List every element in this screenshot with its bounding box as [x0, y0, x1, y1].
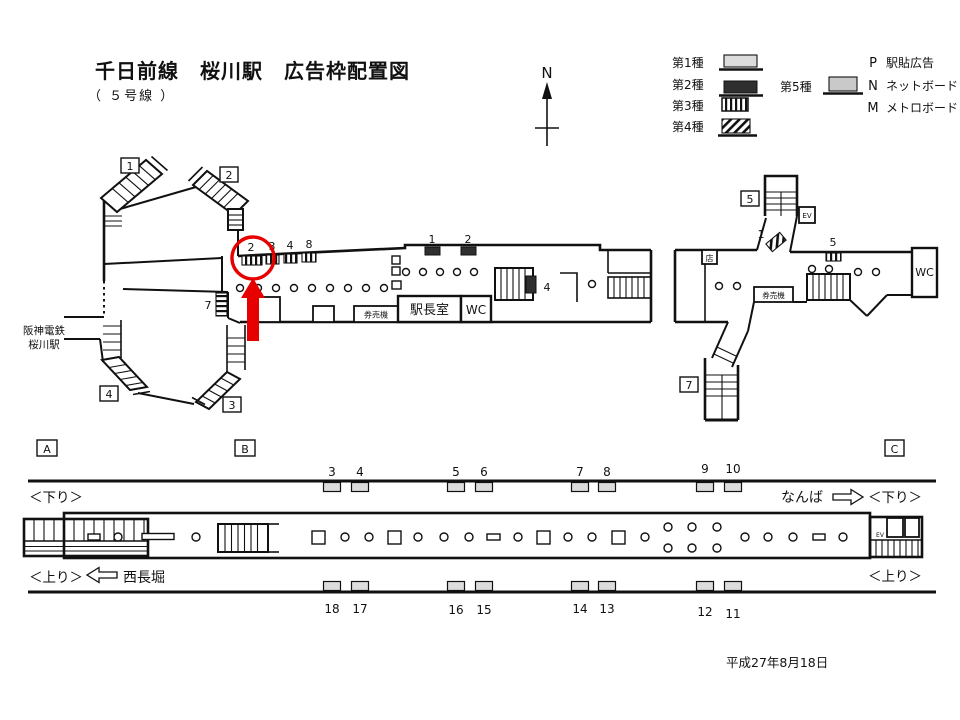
pillar — [341, 533, 349, 541]
pillar — [855, 269, 862, 276]
legend-type4-swatch — [722, 119, 750, 133]
platform-right-stairs: EV — [870, 517, 922, 557]
namba-destination: なんば — [781, 490, 823, 506]
platform-ad-label: 10 — [725, 462, 740, 476]
platform-ad-frame — [324, 483, 341, 492]
left-arrow-icon — [87, 568, 117, 583]
board-4 — [526, 276, 536, 293]
pillar — [741, 533, 749, 541]
platform-ad-label: 11 — [725, 607, 740, 621]
platform-ad-label: 13 — [599, 602, 614, 616]
ad-frame-7-label: 7 — [205, 299, 212, 312]
pillar-box — [537, 531, 550, 544]
legend-p-label: 駅貼広告 — [886, 55, 934, 70]
legend-n-label: ネットボード — [886, 79, 958, 93]
legend-type1-label: 第1種 — [672, 56, 704, 70]
ad-frame-8-label: 8 — [306, 238, 313, 251]
pillar — [514, 533, 522, 541]
pillar — [809, 266, 816, 273]
legend-n-key: N — [868, 79, 878, 94]
stair-3: 3 — [138, 325, 245, 412]
platform-ad-frame — [697, 582, 714, 591]
utility-room — [313, 306, 334, 322]
ticket-machine-label: 券売機 — [762, 290, 785, 300]
legend-p-key: P — [869, 56, 877, 71]
up-direction-left: ＜上り＞ — [29, 570, 83, 586]
stair-band — [102, 357, 147, 390]
pillar — [873, 269, 880, 276]
ad-frame-2-label: 2 — [248, 241, 255, 254]
left-concourse: 1 2 — [23, 157, 651, 413]
pillar — [839, 533, 847, 541]
ad-frame-4 — [284, 254, 297, 263]
shop-label: 店 — [706, 253, 714, 263]
down-direction-right: ＜下り＞ — [868, 490, 922, 506]
legend-type2-swatch — [724, 81, 757, 93]
pillar — [465, 533, 473, 541]
pillar-box — [312, 531, 325, 544]
right-arrow-icon — [833, 490, 863, 505]
wall — [790, 216, 797, 252]
legend-type3-label: 第3種 — [672, 99, 704, 113]
stair-7: 7 — [680, 322, 748, 420]
legend-type1-swatch — [724, 55, 757, 67]
corridor-top-wall — [238, 245, 651, 256]
legend: 第1種 第2種 第3種 第4種 第5種 P 駅貼広告 N ネットボード M メト… — [672, 55, 958, 136]
stair-rail — [732, 331, 748, 367]
pillar-box — [142, 534, 174, 540]
pillar — [716, 283, 723, 290]
pillar — [688, 523, 696, 531]
pillar-box — [392, 267, 400, 275]
pillar — [345, 285, 352, 292]
platform-ad-label: 3 — [328, 465, 336, 479]
pillar — [365, 533, 373, 541]
pillar — [764, 533, 772, 541]
platform-ad-frame — [572, 582, 589, 591]
date-label: 平成27年8月18日 — [726, 655, 828, 670]
pillar — [641, 533, 649, 541]
pillar — [454, 269, 461, 276]
platform-ad-label: 5 — [452, 465, 460, 479]
board-2 — [461, 247, 476, 255]
platform-ev-label: EV — [876, 532, 885, 539]
platform-ad-frame — [725, 582, 742, 591]
pillar — [440, 533, 448, 541]
wc-label: WC — [466, 303, 486, 317]
wall — [100, 339, 103, 362]
platform-ad-label: 4 — [356, 465, 364, 479]
platform-ad-label: 9 — [701, 462, 709, 476]
pillar — [414, 533, 422, 541]
stair-1: 1 — [101, 157, 168, 227]
platform-ad-label: 8 — [603, 465, 611, 479]
north-label: N — [541, 64, 552, 82]
title-block: 千日前線 桜川駅 広告枠配置図 （ ５号線 ） — [88, 59, 410, 104]
pillar — [420, 269, 427, 276]
station-ad-layout-page: 千日前線 桜川駅 広告枠配置図 （ ５号線 ） N 第1種 第2種 第3種 第4… — [0, 0, 960, 720]
pillar-box — [392, 281, 401, 289]
ad-frame-r5-label: 5 — [830, 236, 837, 249]
pillar — [327, 285, 334, 292]
platform-ad-label: 17 — [352, 602, 367, 616]
pillar — [688, 544, 696, 552]
wall — [748, 302, 754, 331]
exit-2-label: 2 — [226, 169, 233, 182]
platform-ad-frame — [476, 483, 493, 492]
ad-frame-r1-label: 1 — [758, 228, 765, 241]
pillar — [589, 281, 596, 288]
platform-ad-label: 14 — [572, 602, 587, 616]
pillar — [471, 269, 478, 276]
pillar — [564, 533, 572, 541]
legend-type5-swatch — [829, 77, 857, 91]
pillar-box — [88, 534, 100, 540]
wc-label: WC — [915, 266, 934, 279]
pillar — [664, 544, 672, 552]
pillar — [734, 283, 741, 290]
right-central-stairs — [807, 266, 880, 301]
platform-ad-frame — [476, 582, 493, 591]
stair-2: 2 — [189, 167, 249, 230]
compass-arrowhead-icon — [542, 82, 552, 99]
platform-left-stairs — [24, 519, 148, 556]
platform-ad-frame — [599, 483, 616, 492]
pillar — [403, 269, 410, 276]
station-master-label: 駅長室 — [410, 302, 449, 318]
legend-type2-label: 第2種 — [672, 78, 704, 92]
pillar — [363, 285, 370, 292]
legend-m-label: メトロボード — [886, 101, 958, 115]
page-subtitle: （ ５号線 ） — [88, 88, 175, 104]
wall — [867, 295, 887, 316]
ad-frame-7 — [216, 293, 227, 316]
page-title: 千日前線 桜川駅 広告枠配置図 — [95, 59, 410, 83]
stair-4: 4 — [100, 320, 150, 401]
north-compass: N — [535, 64, 559, 146]
platform-ad-frame — [448, 483, 465, 492]
pillar-box — [487, 534, 500, 540]
section-a-label: A — [43, 443, 51, 456]
right-concourse: 店 5 EV 1 5 券売機 — [675, 176, 937, 420]
platform-ad-frame — [448, 582, 465, 591]
machine-room — [905, 518, 919, 537]
platform-ad-frame — [697, 483, 714, 492]
platform-ad-label: 16 — [448, 603, 463, 617]
ad-frame-r5 — [826, 253, 841, 261]
pillar-box — [392, 256, 400, 264]
ad-frame-8 — [302, 253, 316, 262]
board-1 — [425, 247, 440, 255]
ad-frame-r1-box — [766, 232, 786, 251]
ad-frame-r1 — [766, 232, 786, 251]
pillar — [192, 533, 200, 541]
hanshin-station-label-line2: 桜川駅 — [28, 338, 60, 351]
platform-diagram: A B C 3 4 5 6 7 8 9 10 ＜下り＞ なんば ＜下り＞ ＜上り… — [24, 440, 936, 621]
board-4-label: 4 — [544, 281, 551, 294]
pillar — [664, 523, 672, 531]
wall — [228, 318, 240, 323]
wall — [850, 300, 867, 316]
platform-ad-frame — [324, 582, 341, 591]
upper-hall-bottom-wall — [104, 258, 222, 264]
platform-ad-label: 6 — [480, 465, 488, 479]
pillar — [273, 285, 280, 292]
legend-type5-label: 第5種 — [780, 80, 812, 94]
platform-ad-frame — [599, 582, 616, 591]
down-direction-left: ＜下り＞ — [29, 490, 83, 506]
pillar-box — [612, 531, 625, 544]
stair-tread — [717, 347, 736, 356]
platform-ad-frame — [572, 483, 589, 492]
stair-tread — [714, 354, 733, 363]
pillar-box — [813, 534, 825, 540]
legend-type3-swatch — [722, 98, 748, 111]
hanshin-station-label-line1: 阪神電鉄 — [23, 324, 65, 337]
platform-ad-label: 12 — [697, 605, 712, 619]
pillar — [291, 285, 298, 292]
exit-1-label: 1 — [127, 160, 134, 173]
exit-5-label: 5 — [747, 193, 754, 206]
legend-m-key: M — [867, 101, 878, 116]
section-c-label: C — [891, 443, 899, 456]
wall — [560, 273, 577, 302]
platform-center-stairs — [218, 524, 279, 552]
pillar — [713, 544, 721, 552]
up-direction-right: ＜上り＞ — [868, 569, 922, 585]
lower-hall-top-wall — [123, 289, 228, 292]
exit-4-label: 4 — [106, 388, 113, 401]
platform-ad-frame — [352, 582, 369, 591]
ticket-machine-label: 券売機 — [364, 310, 388, 320]
central-stairs: 4 — [495, 268, 551, 300]
pillar — [826, 266, 833, 273]
section-b-label: B — [241, 443, 249, 456]
lower-hall-bottom-wall — [138, 393, 194, 404]
pillar — [309, 285, 316, 292]
pillar — [114, 533, 122, 541]
pillar — [789, 533, 797, 541]
pillar — [381, 285, 388, 292]
platform-ad-label: 15 — [476, 603, 491, 617]
exit-3-label: 3 — [229, 399, 236, 412]
ad-frame-4-label: 4 — [287, 239, 294, 252]
stair-rail — [712, 322, 728, 358]
platform-pillars — [88, 523, 847, 552]
utility-room — [256, 297, 280, 322]
legend-type4-label: 第4種 — [672, 120, 704, 134]
pillar — [237, 285, 244, 292]
platform-ad-frame — [725, 483, 742, 492]
platform-ad-frame — [352, 483, 369, 492]
board-2-label: 2 — [465, 233, 472, 246]
elevator-label: EV — [802, 212, 811, 220]
board-1-label: 1 — [429, 233, 436, 246]
ad-frame-2 — [242, 256, 262, 265]
diagram-canvas: 千日前線 桜川駅 広告枠配置図 （ ５号線 ） N 第1種 第2種 第3種 第4… — [0, 0, 960, 720]
exit-7-label: 7 — [686, 379, 693, 392]
platform-ad-label: 18 — [324, 602, 339, 616]
pillar — [437, 269, 444, 276]
platform-ad-label: 7 — [576, 465, 584, 479]
pillar — [713, 523, 721, 531]
nishinagahori-destination: 西長堀 — [123, 570, 165, 586]
pillar — [588, 533, 596, 541]
machine-room — [887, 518, 903, 537]
concourse-right-section — [560, 250, 651, 302]
pillar-box — [388, 531, 401, 544]
